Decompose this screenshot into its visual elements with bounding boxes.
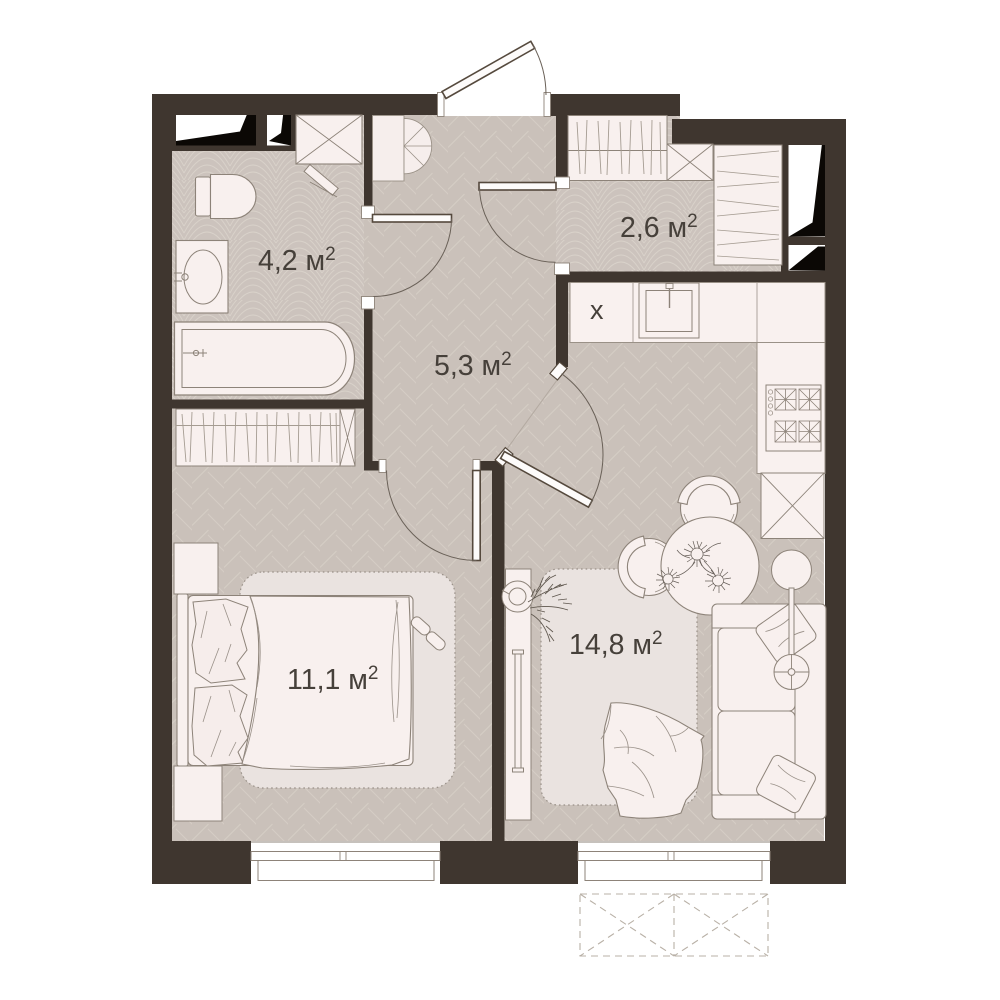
svg-text:4,2 м2: 4,2 м2	[258, 244, 336, 277]
svg-text:5,3 м2: 5,3 м2	[434, 349, 512, 382]
svg-text:х: х	[590, 295, 606, 325]
svg-text:2,6 м2: 2,6 м2	[620, 211, 698, 244]
svg-text:11,1 м2: 11,1 м2	[287, 663, 378, 696]
svg-text:14,8 м2: 14,8 м2	[569, 628, 663, 661]
